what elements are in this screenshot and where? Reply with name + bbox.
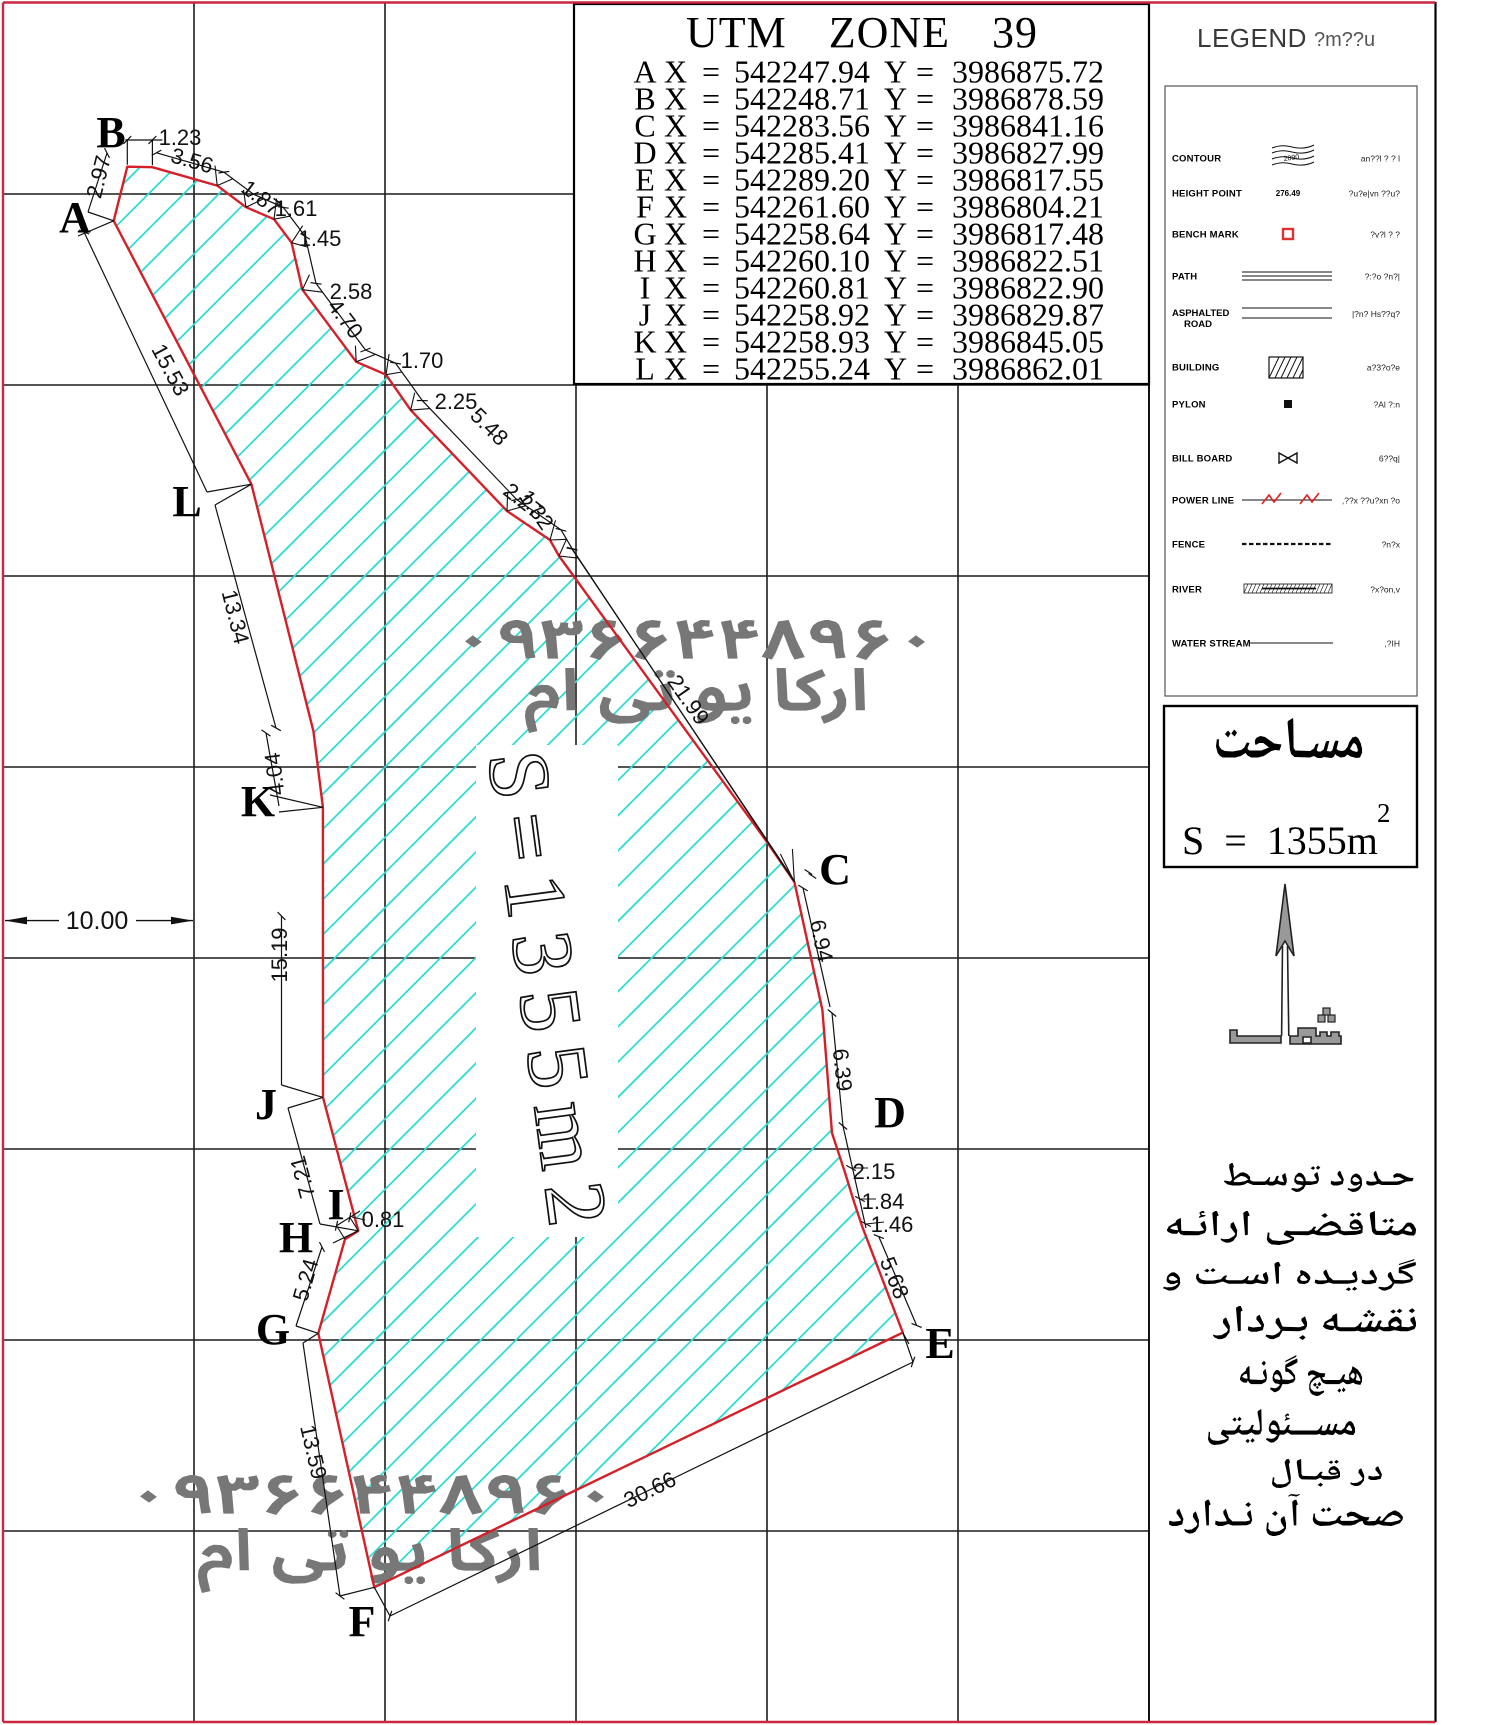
svg-text:,??x ??u?xn ?o: ,??x ??u?xn ?o [1342,496,1400,506]
svg-text:L: L [172,477,201,526]
svg-text:10.00: 10.00 [66,907,129,935]
svg-text:?x?on,v: ?x?on,v [1370,585,1401,595]
svg-text:=: = [916,350,934,386]
svg-text:RIVER: RIVER [1172,585,1202,596]
svg-text:1.45: 1.45 [299,226,342,251]
svg-text:?u?e|vn ??u?: ?u?e|vn ??u? [1349,189,1401,199]
svg-text:UTM ZONE 39: UTM ZONE 39 [686,8,1038,57]
svg-text:X: X [664,350,687,386]
svg-text:?v?l ? ?: ?v?l ? ? [1370,230,1400,240]
svg-text:=: = [702,350,720,386]
svg-text:276.49: 276.49 [1276,189,1301,198]
svg-text:an??l ? ? l: an??l ? ? l [1361,154,1400,164]
svg-text:PYLON: PYLON [1172,400,1206,411]
svg-text:FENCE: FENCE [1172,540,1205,551]
svg-text:D: D [874,1088,906,1137]
svg-text:BENCH MARK: BENCH MARK [1172,230,1239,241]
svg-text:BUILDING: BUILDING [1172,363,1220,374]
svg-text:1.70: 1.70 [401,348,444,373]
svg-text:2: 2 [1377,798,1391,828]
svg-text:POWER LINE: POWER LINE [1172,496,1234,507]
svg-text:3986862.01: 3986862.01 [952,350,1104,386]
svg-text:CONTOUR: CONTOUR [1172,154,1221,165]
svg-text:1.46: 1.46 [871,1212,914,1237]
svg-text:LEGEND: LEGEND [1197,23,1307,53]
svg-text:2.25: 2.25 [435,389,478,414]
svg-text:15.19: 15.19 [267,927,292,982]
svg-text:K: K [241,777,275,826]
svg-text:?n?x: ?n?x [1382,540,1401,550]
svg-text:A: A [59,193,91,242]
svg-text:?Al ?:n: ?Al ?:n [1374,400,1401,410]
svg-text:a?3?o?e: a?3?o?e [1367,363,1400,373]
svg-text:1.61: 1.61 [275,196,318,221]
svg-text:HEIGHT POINT: HEIGHT POINT [1172,189,1242,200]
svg-text:2.15: 2.15 [853,1159,896,1184]
svg-text:B: B [96,108,125,157]
svg-text:,?IH: ,?IH [1384,639,1400,649]
svg-text:1.84: 1.84 [862,1189,905,1214]
svg-text:?m??u: ?m??u [1314,29,1375,51]
svg-text:WATER STREAM: WATER STREAM [1172,639,1251,650]
svg-text:0.81: 0.81 [362,1207,405,1232]
svg-text:H: H [279,1213,313,1262]
svg-text:Y: Y [884,350,907,386]
svg-text:6??q|: 6??q| [1379,454,1400,464]
svg-text:L: L [635,350,655,386]
svg-text:6.39: 6.39 [828,1047,857,1092]
svg-text:ROAD: ROAD [1184,319,1212,330]
svg-text:C: C [819,845,851,894]
svg-text:?:?o ?n?|: ?:?o ?n?| [1365,272,1400,282]
svg-text:E: E [925,1319,954,1368]
svg-text:|?n? Hs??q?: |?n? Hs??q? [1352,309,1400,319]
svg-text:J: J [255,1080,277,1129]
svg-text:I: I [327,1180,344,1229]
svg-text:F: F [349,1597,376,1646]
svg-text:542255.24: 542255.24 [734,350,870,386]
svg-text:BILL BOARD: BILL BOARD [1172,454,1232,465]
svg-text:S = 1355m: S = 1355m [1182,818,1378,863]
svg-text:PATH: PATH [1172,272,1197,283]
svg-text:ASPHALTED: ASPHALTED [1172,308,1229,319]
svg-text:G: G [256,1305,290,1354]
